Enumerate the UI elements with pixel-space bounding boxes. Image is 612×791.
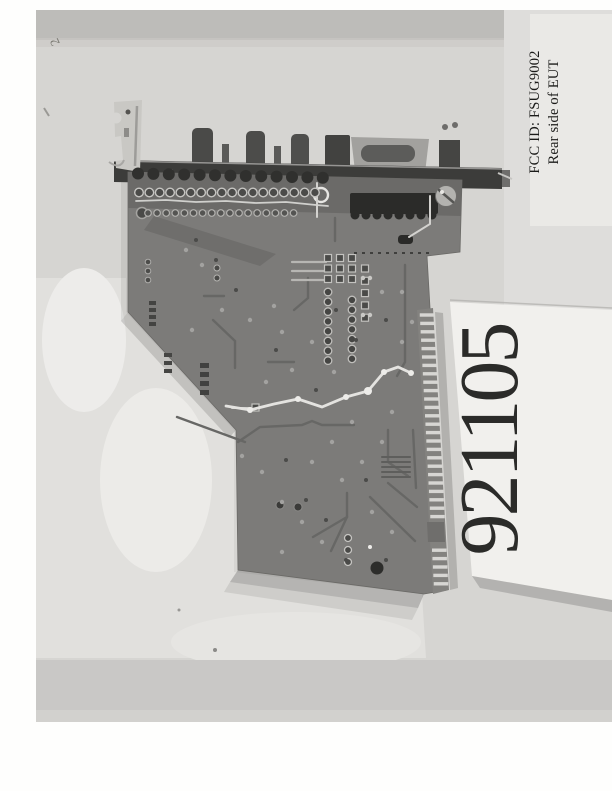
audio-jack-2 xyxy=(246,131,265,168)
pcb-photo-graphic xyxy=(36,10,612,722)
header-strip xyxy=(350,193,438,214)
db15-socket xyxy=(361,145,415,162)
mounting-hole xyxy=(371,562,384,575)
number-card xyxy=(450,300,612,612)
scanned-photo-page: FCC ID: FSUG9002 Rear side of EUT 921105… xyxy=(0,0,612,791)
connector-pin xyxy=(452,122,458,128)
jack-nut xyxy=(439,140,460,168)
photo: FCC ID: FSUG9002 Rear side of EUT 921105… xyxy=(36,10,612,722)
bracket-screw xyxy=(436,186,457,207)
audio-jack-3 xyxy=(291,134,309,168)
connector-block xyxy=(325,135,350,168)
connector-pin xyxy=(442,124,448,130)
